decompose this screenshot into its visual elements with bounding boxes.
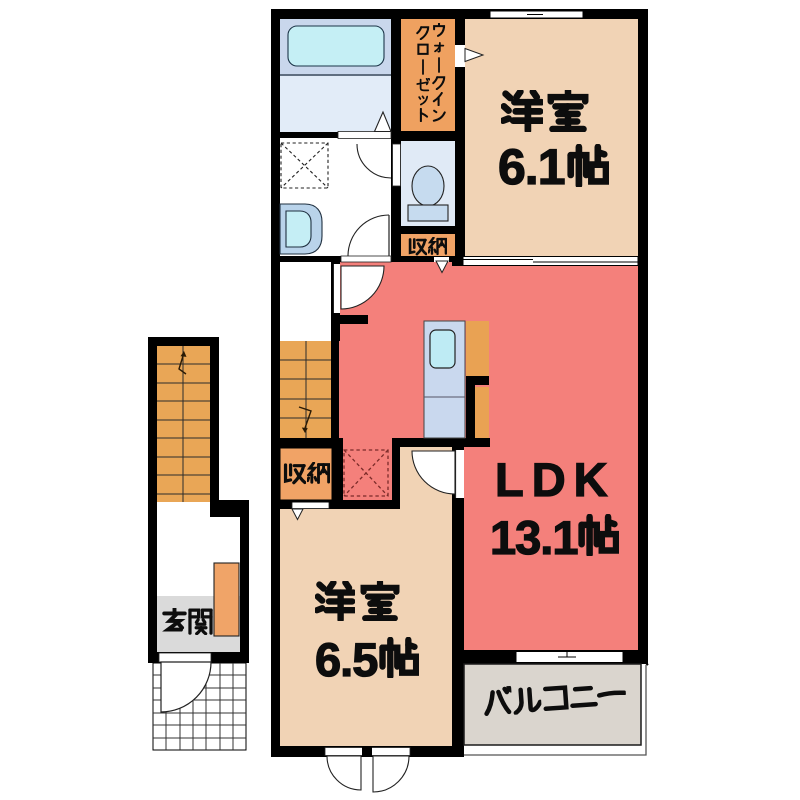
svg-text:LDK: LDK	[495, 453, 616, 506]
svg-text:6.5: 6.5	[315, 633, 377, 686]
svg-text:6.1: 6.1	[498, 139, 565, 195]
svg-text:13.1: 13.1	[490, 511, 577, 564]
